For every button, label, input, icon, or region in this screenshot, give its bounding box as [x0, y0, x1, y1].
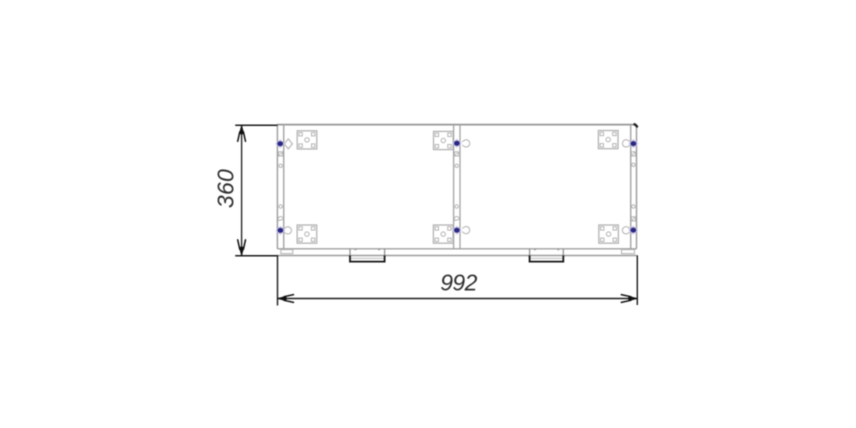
svg-text:992: 992 [440, 270, 477, 296]
svg-text:360: 360 [213, 169, 239, 208]
